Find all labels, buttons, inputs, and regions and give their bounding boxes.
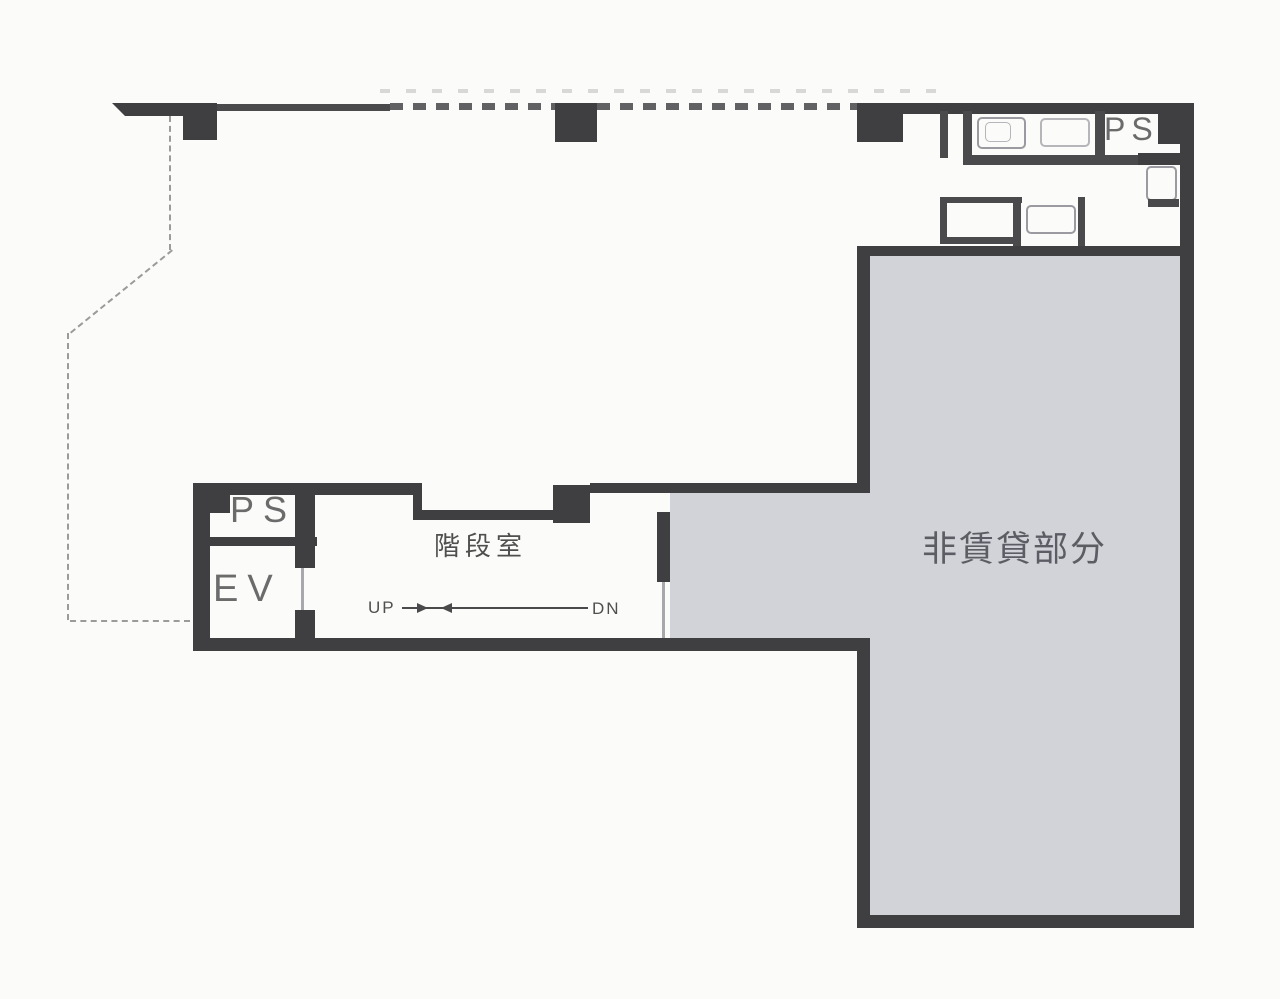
elevator-door-line	[301, 568, 304, 610]
floor-plan: 非賃貸部分 PS EV 階段室 PS UP DN	[0, 0, 1280, 999]
boundary-dashed-line	[70, 620, 190, 622]
exterior-wall-corner-bevel	[112, 103, 125, 116]
ev-block-wall-right-lower	[295, 610, 315, 651]
non-rental-wall-top	[857, 246, 1180, 256]
stair-down-label: DN	[592, 600, 621, 617]
pipe-space-label: PS	[1104, 113, 1159, 145]
pipe-space-label: PS	[230, 492, 296, 528]
window-dashed-line	[597, 103, 857, 110]
wc-wall-top	[940, 197, 1022, 203]
stall-wall-top	[1138, 153, 1180, 165]
corridor-wall-top	[590, 483, 860, 493]
non-rental-area	[860, 250, 1180, 918]
corridor-area	[670, 493, 870, 638]
boundary-dashed-line	[67, 333, 69, 620]
stair-corridor-divider-line	[662, 582, 665, 638]
stairwell-label: 階段室	[434, 533, 527, 559]
non-rental-wall-left-lower	[857, 638, 870, 928]
column	[183, 103, 217, 140]
stair-corridor-divider-wall	[657, 512, 670, 582]
stair-direction-line	[402, 607, 588, 609]
non-rental-wall-bottom	[857, 915, 1194, 928]
non-rental-label: 非賃貸部分	[922, 532, 1107, 567]
stall-wall-stub	[1148, 199, 1179, 207]
sink-fixture	[1040, 118, 1090, 147]
boundary-dashed-line	[169, 116, 171, 250]
stair-arrowhead-left-icon	[441, 603, 452, 613]
toilet-fixture	[1146, 166, 1177, 201]
exterior-wall-top	[217, 104, 390, 111]
stair-arrowhead-right-icon	[417, 603, 428, 613]
wc-wall-bottom	[940, 237, 1019, 244]
column	[555, 103, 597, 142]
non-rental-wall-left-upper	[857, 246, 870, 493]
column	[553, 485, 590, 523]
toilet-fixture	[1026, 205, 1076, 234]
scan-artifact-dashes	[380, 89, 940, 93]
stairwell-wall-notch-horizontal	[420, 510, 553, 520]
ev-block-corner-column	[193, 483, 230, 513]
exterior-wall-right	[1180, 103, 1194, 928]
elevator-label: EV	[213, 570, 282, 608]
boundary-dashed-line	[70, 249, 173, 333]
sink-fixture-basin	[985, 122, 1011, 142]
window-dashed-line	[390, 103, 555, 110]
column	[857, 103, 903, 142]
ev-block-wall-right-upper	[295, 483, 315, 568]
toilet-block-wall	[940, 111, 948, 158]
stair-up-label: UP	[368, 599, 396, 616]
